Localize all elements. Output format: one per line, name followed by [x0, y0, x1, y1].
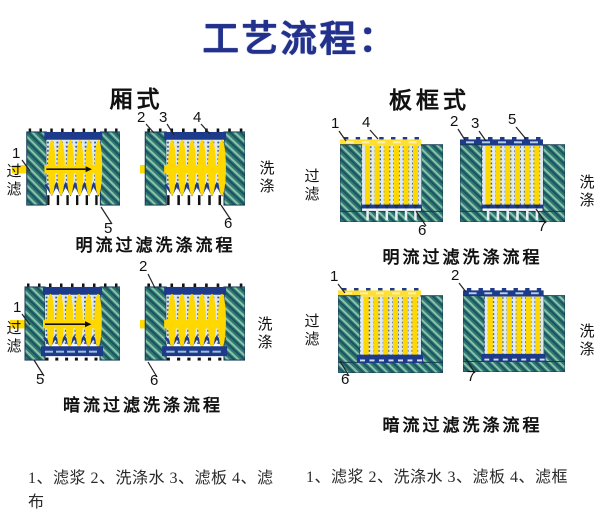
- label-washing-chamber-open: 洗涤: [257, 160, 274, 196]
- callout-frame-open-2: 2: [450, 114, 458, 129]
- callout-frame-open-4: 4: [362, 115, 370, 130]
- callout-frame-closed-2: 2: [451, 268, 459, 283]
- callout-frame-closed-6: 6: [341, 372, 349, 387]
- page-title: 工艺流程：: [0, 10, 600, 62]
- chamber-open-filtration-diagram: [12, 128, 120, 212]
- callout-chamber-open-1: 1: [12, 146, 20, 161]
- callout-chamber-open-4: 4: [193, 110, 201, 125]
- callout-chamber-closed-2: 2: [139, 259, 147, 274]
- legend-plate-frame-line1: 1、滤浆 2、洗涤水 3、滤板 4、滤框: [306, 466, 576, 490]
- callout-chamber-open-6: 6: [224, 216, 232, 231]
- callout-frame-closed-1: 1: [330, 269, 338, 284]
- legend-chamber-line1: 1、滤浆 2、洗涤水 3、滤板 4、滤布: [28, 467, 288, 513]
- callout-chamber-closed-6: 6: [150, 373, 158, 388]
- label-filtration-chamber-open: 过滤: [4, 163, 21, 199]
- callout-chamber-open-2: 2: [137, 110, 145, 125]
- label-filtration-frame-closed: 过滤: [302, 313, 319, 349]
- callout-frame-closed-7: 7: [467, 369, 475, 384]
- chamber-open-washing-diagram: [140, 128, 245, 212]
- caption-frame-closed: 暗流过滤洗涤流程: [365, 411, 560, 436]
- callout-chamber-closed-1: 1: [13, 300, 21, 315]
- label-washing-frame-open: 洗涤: [577, 174, 594, 210]
- legend-chamber: 1、滤浆 2、洗涤水 3、滤板 4、滤布 5、滤液 6、洗液: [28, 443, 288, 513]
- chamber-closed-filtration-diagram: [10, 283, 120, 367]
- frame-closed-filtration-diagram: [338, 288, 443, 373]
- label-filtration-chamber-closed: 过滤: [4, 320, 21, 356]
- section-header-plate-frame: 板框式: [382, 81, 477, 115]
- label-washing-chamber-closed: 洗涤: [255, 316, 272, 352]
- callout-frame-open-6: 6: [418, 223, 426, 238]
- frame-open-filtration-diagram: [340, 137, 443, 222]
- frame-open-washing-diagram: [460, 137, 565, 222]
- caption-chamber-open: 明流过滤洗涤流程: [58, 231, 253, 256]
- caption-frame-open: 明流过滤洗涤流程: [365, 243, 560, 268]
- callout-chamber-open-3: 3: [159, 110, 167, 125]
- callout-chamber-closed-5: 5: [36, 372, 44, 387]
- process-flow-poster: 工艺流程： 厢式 板框式: [0, 0, 600, 513]
- callout-frame-open-3: 3: [471, 116, 479, 131]
- frame-closed-washing-diagram: [463, 288, 565, 372]
- callout-frame-open-5: 5: [508, 112, 516, 127]
- chamber-closed-washing-diagram: [140, 283, 245, 367]
- label-washing-frame-closed: 洗涤: [577, 323, 594, 359]
- legend-plate-frame: 1、滤浆 2、洗涤水 3、滤板 4、滤框 5、滤布 6、滤液 7、洗液: [306, 442, 576, 513]
- callout-frame-open-1: 1: [331, 116, 339, 131]
- caption-chamber-closed: 暗流过滤洗涤流程: [45, 391, 241, 416]
- callout-frame-open-7: 7: [538, 219, 546, 234]
- label-filtration-frame-open: 过滤: [302, 168, 319, 204]
